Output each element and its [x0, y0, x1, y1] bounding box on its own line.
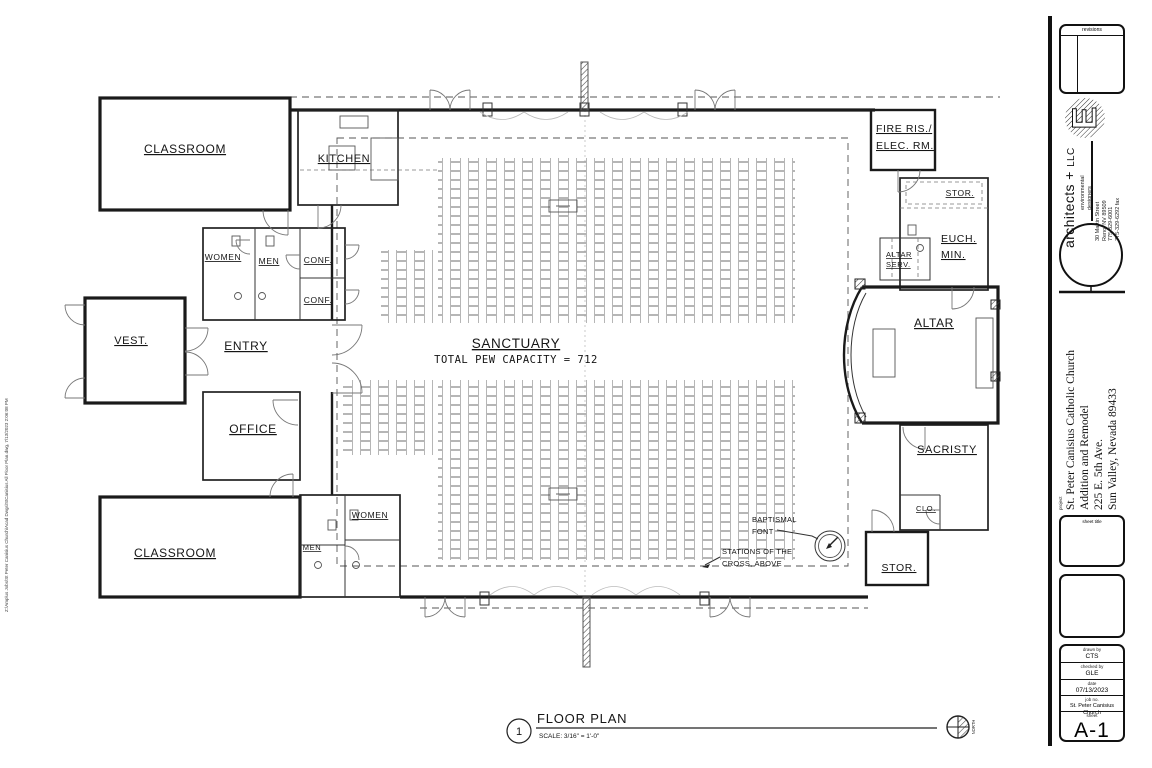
label-classroom-bottom: CLASSROOM [134, 546, 216, 560]
revisions-label: revisions [1061, 26, 1123, 36]
firm-tagline: environmental designers [1080, 152, 1093, 210]
label-fire-1: FIRE RIS./ [876, 123, 932, 135]
label-altar: ALTAR [914, 316, 954, 330]
baptismal-font-symbol [815, 531, 845, 561]
floor-plan-drawing: CLASSROOM KITCHEN WOMEN MEN CONF. CONF. … [0, 0, 1045, 768]
sheet-title-box: sheet title [1059, 515, 1125, 567]
notes-box [1059, 574, 1125, 638]
date-row: date 07/13/2023 [1061, 680, 1123, 696]
drawn-by-value: CTS [1061, 653, 1123, 660]
drawing-title-block: 1 FLOOR PLAN SCALE: 3/16" = 1'-0" NORTH [507, 711, 976, 743]
label-clo: CLO. [916, 504, 936, 513]
titleblock-border-bar [1048, 16, 1052, 746]
titleblock: revisions E architects + LLC environment… [1045, 0, 1152, 768]
revisions-box: revisions [1059, 24, 1125, 94]
label-stor-bottom: STOR. [882, 562, 917, 574]
date-value: 07/13/2023 [1061, 687, 1123, 694]
steeple-wall-bottom [583, 597, 590, 667]
label-baptismal-1: BAPTISMAL [752, 515, 797, 524]
label-euch-1: EUCH. [941, 233, 977, 245]
north-arrow-icon: NORTH [947, 716, 976, 738]
label-kitchen: KITCHEN [318, 153, 370, 165]
project-name: St. Peter Canisius Catholic Church [1064, 298, 1078, 510]
project-info: St. Peter Canisius Catholic Church Addit… [1064, 298, 1122, 510]
sheet-info-box: drawn by CTS checked by GLE date 07/13/2… [1059, 644, 1125, 742]
north-label: NORTH [971, 720, 976, 735]
label-euch-2: MIN. [941, 249, 966, 261]
label-women-bottom: WOMEN [352, 510, 389, 520]
architect-stamp [1053, 220, 1131, 298]
checked-by-row: checked by GLE [1061, 663, 1123, 680]
project-address: 225 E. 5th Ave. [1092, 298, 1106, 510]
sheet-number: A-1 [1061, 719, 1123, 742]
label-sacristy: SACRISTY [917, 444, 977, 456]
label-office: OFFICE [229, 422, 277, 436]
label-sanctuary: SANCTUARY [472, 336, 560, 351]
label-classroom-top: CLASSROOM [144, 142, 226, 156]
label-conf-bottom: CONF. [304, 295, 333, 305]
label-entry: ENTRY [224, 339, 267, 353]
project-city: Sun Valley, Nevada 89433 [1106, 298, 1120, 510]
drawn-by-row: drawn by CTS [1061, 646, 1123, 663]
label-men-top: MEN [259, 256, 280, 266]
label-baptismal-2: FONT [752, 527, 774, 536]
pew-bank-upper-left [381, 250, 433, 323]
label-stations-1: STATIONS OF THE [722, 547, 792, 556]
label-stations-2: CROSS, ABOVE [722, 559, 782, 568]
label-women-top: WOMEN [205, 252, 242, 262]
label-fire-2: ELEC. RM. [876, 140, 934, 152]
drawing-scale: SCALE: 3/16" = 1'-0" [539, 733, 600, 740]
sheet-title-label: sheet title [1061, 517, 1123, 524]
project-scope: Addition and Remodel [1078, 298, 1092, 510]
pew-bank-lower-left [343, 380, 433, 455]
steeple-wall-top [581, 62, 588, 110]
sheet-number-row: sheet A-1 [1061, 712, 1123, 742]
label-vest: VEST. [114, 335, 148, 347]
drawing-sheet: Z:\Amplus Jobs\St Peter Canisius Church\… [0, 0, 1152, 768]
label-altar-serv-1: ALTAR [886, 250, 912, 259]
drawing-title: FLOOR PLAN [537, 711, 627, 726]
label-pew-capacity: TOTAL PEW CAPACITY = 712 [434, 354, 598, 366]
pew-bank-lower [438, 380, 795, 560]
job-row: job no. St. Peter Canisius Church [1061, 696, 1123, 712]
label-men-bottom: MEN [303, 543, 321, 552]
revisions-divider [1077, 35, 1078, 92]
detail-number: 1 [516, 726, 522, 738]
label-conf-top: CONF. [304, 255, 333, 265]
pew-bank-upper [438, 158, 795, 323]
label-altar-serv-2: SERV. [886, 260, 911, 269]
checked-by-value: GLE [1061, 670, 1123, 677]
label-stor-top: STOR. [946, 188, 975, 198]
